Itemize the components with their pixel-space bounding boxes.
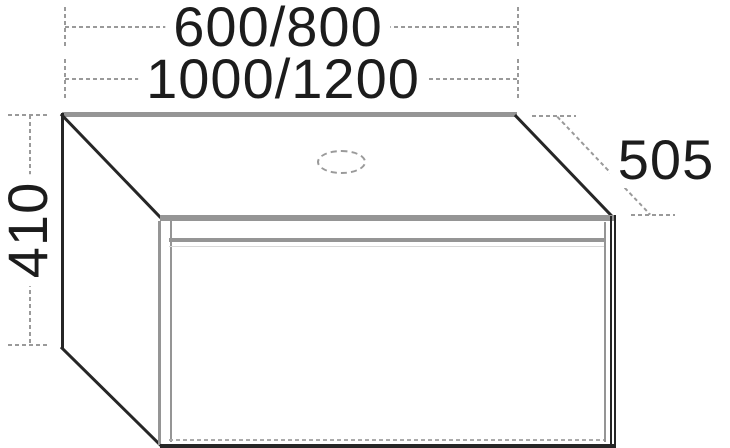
countertop-left-edge — [60, 113, 162, 219]
dim-label-bottom-width: 1000/1200 — [138, 51, 428, 107]
drawer-bottom-edge — [169, 439, 604, 441]
cabinet-right-edge-inner — [610, 216, 612, 448]
drawer-top-gap-shadow-line — [169, 246, 604, 247]
dim-label-depth: 505 — [610, 132, 722, 188]
front-left-corner-edge — [158, 221, 161, 445]
dimension-drawing: 600/800 1000/1200 410 505 — [0, 0, 730, 448]
cabinet-bottom-left-edge — [60, 346, 163, 447]
countertop-back-edge — [62, 112, 517, 117]
countertop-right-edge — [514, 114, 613, 217]
dim-tick-depth-bottom — [631, 214, 675, 216]
drawer-front-left-edge — [170, 221, 173, 442]
drawer-top-gap-line — [169, 238, 604, 242]
cabinet-back-left-edge — [61, 113, 64, 348]
cabinet-right-edge-outer — [614, 215, 617, 448]
dim-tick-depth-top — [532, 115, 576, 117]
dim-label-height: 410 — [0, 174, 56, 286]
drawer-front-right-edge — [604, 222, 606, 442]
cabinet-bottom-edge — [160, 444, 616, 448]
tap-hole-cutout-icon — [317, 150, 366, 174]
countertop-front-edge — [160, 215, 616, 221]
